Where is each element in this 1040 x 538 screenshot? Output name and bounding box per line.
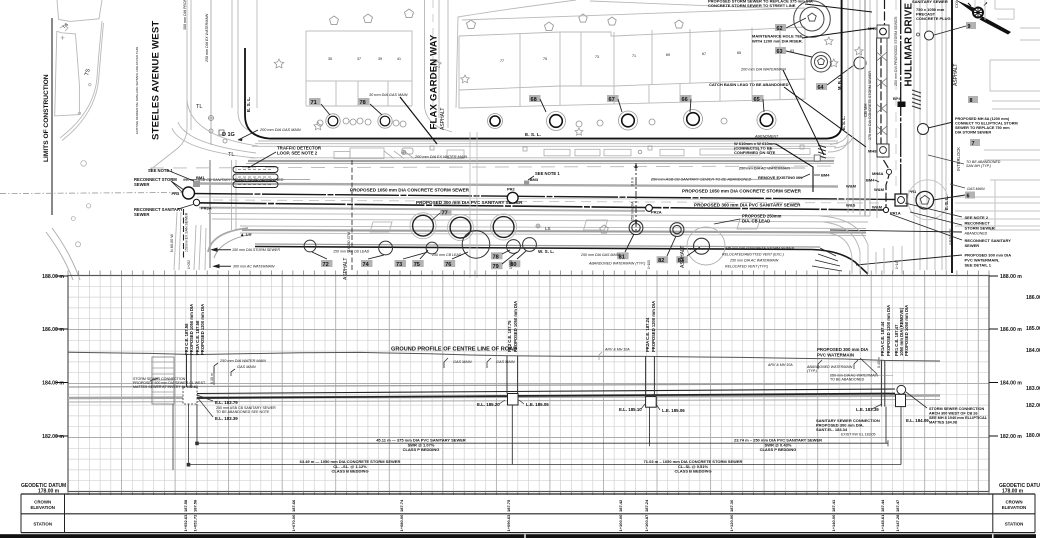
svg-text:STATION: STATION xyxy=(33,522,52,527)
svg-text:CROWN: CROWN xyxy=(34,500,51,505)
svg-text:67: 67 xyxy=(609,97,615,103)
svg-text:64: 64 xyxy=(818,85,824,91)
svg-text:180.00: 180.00 xyxy=(1026,433,1040,439)
svg-text:250 mm DIA WATER MAIN: 250 mm DIA WATER MAIN xyxy=(219,359,266,363)
svg-text:PROPOSED 300 mm DIA: PROPOSED 300 mm DIA xyxy=(817,347,869,352)
svg-text:66: 66 xyxy=(682,97,688,103)
svg-text:TO BE ABANDONED SEE NOTE: TO BE ABANDONED SEE NOTE xyxy=(216,410,270,414)
svg-text:TL: TL xyxy=(196,104,202,110)
svg-text:186.00 m: 186.00 m xyxy=(1000,327,1022,333)
svg-text:STATION: STATION xyxy=(1005,522,1024,527)
svg-text:75: 75 xyxy=(543,57,547,61)
svg-text:1+090: 1+090 xyxy=(509,260,513,269)
svg-text:PR1A C.E. 187.44: PR1A C.E. 187.44 xyxy=(880,321,885,356)
svg-text:PROPOSED 300 mm DIA PVC SANITA: PROPOSED 300 mm DIA PVC SANITARY SEWER xyxy=(416,200,523,205)
svg-text:0.30 m: 0.30 m xyxy=(210,373,214,384)
svg-text:67: 67 xyxy=(702,52,706,56)
svg-text:185.00: 185.00 xyxy=(1026,326,1040,332)
svg-text:1+070.00: 1+070.00 xyxy=(291,514,296,532)
svg-text:PR3A: PR3A xyxy=(201,206,212,211)
svg-text:STORM SEWER CONNECTION: STORM SEWER CONNECTION xyxy=(929,407,984,411)
svg-text:250 mm DIA: 250 mm DIA xyxy=(631,201,635,221)
svg-text:0.6 m: 0.6 m xyxy=(631,177,635,186)
svg-text:1+120.00: 1+120.00 xyxy=(729,514,734,532)
svg-text:71: 71 xyxy=(632,54,636,58)
svg-text:8: 8 xyxy=(970,98,973,104)
svg-text:HULLMAR DRIVE: HULLMAR DRIVE xyxy=(904,3,915,87)
svg-text:CLASS P BEDDING: CLASS P BEDDING xyxy=(760,447,797,452)
svg-text:73: 73 xyxy=(396,262,402,268)
svg-text:GROUND PROFILE OF CENTRE LINE: GROUND PROFILE OF CENTRE LINE OF ROAD xyxy=(391,347,517,353)
svg-text:1+052.72: 1+052.72 xyxy=(193,514,198,532)
svg-text:150 mm DIA STORM SEWER: 150 mm DIA STORM SEWER xyxy=(232,248,280,252)
svg-text:250 mm CB LEAD: 250 mm CB LEAD xyxy=(431,253,462,257)
svg-text:1+052: 1+052 xyxy=(187,260,191,269)
svg-text:E. S. L.: E. S. L. xyxy=(525,132,541,138)
svg-text:183.00: 183.00 xyxy=(1026,386,1040,392)
svg-text:ELEVATION: ELEVATION xyxy=(30,505,54,510)
svg-text:78: 78 xyxy=(493,254,499,260)
svg-text:CONC: CONC xyxy=(954,0,959,8)
svg-text:150mm EX SAN SEWER: 150mm EX SAN SEWER xyxy=(185,212,189,252)
svg-text:ASPHALT: ASPHALT xyxy=(343,258,349,280)
svg-text:65: 65 xyxy=(737,51,741,55)
svg-text:PR2A: PR2A xyxy=(651,210,662,215)
svg-text:9: 9 xyxy=(968,24,971,30)
svg-text:ASPHALT: ASPHALT xyxy=(440,108,446,130)
svg-text:187.24: 187.24 xyxy=(644,499,649,512)
svg-text:250 mm DIA AC WATERMAIN: 250 mm DIA AC WATERMAIN xyxy=(729,259,779,263)
svg-text:SEE NOTE 1: SEE NOTE 1 xyxy=(148,168,173,173)
svg-text:CLASS B BEDDING: CLASS B BEDDING xyxy=(331,468,368,473)
svg-text:184.00: 184.00 xyxy=(1026,348,1040,354)
svg-text:1+147.28: 1+147.28 xyxy=(895,514,900,532)
svg-text:79: 79 xyxy=(493,264,499,270)
svg-text:E.L. 185.10: E.L. 185.10 xyxy=(619,407,642,412)
svg-text:81: 81 xyxy=(619,254,625,260)
svg-text:PROPOSED 1050 mm DIA CONCRETE: PROPOSED 1050 mm DIA CONCRETE STORM SEWE… xyxy=(350,188,470,193)
svg-text:250 mm ASB CB SANITARY SEWER T: 250 mm ASB CB SANITARY SEWER TO BE ABAND… xyxy=(650,178,752,182)
svg-text:ASPHALT: ASPHALT xyxy=(953,64,959,86)
svg-text:CROWN: CROWN xyxy=(1005,500,1022,505)
svg-text:SEWER TO REPLACE 750 mm: SEWER TO REPLACE 750 mm xyxy=(955,126,1010,130)
svg-text:182.00 m: 182.00 m xyxy=(42,434,64,440)
svg-text:W&M: W&M xyxy=(874,187,885,192)
svg-text:6: 6 xyxy=(967,194,970,200)
svg-text:ABANDONED: ABANDONED xyxy=(964,232,988,236)
svg-text:150 mm DIA CB LEAD: 150 mm DIA CB LEAD xyxy=(333,250,370,254)
svg-text:ASPHALT: ASPHALT xyxy=(680,246,686,268)
svg-text:TO BE ABANDONED: TO BE ABANDONED xyxy=(830,378,865,382)
svg-text:82: 82 xyxy=(658,258,664,264)
svg-text:200 mm DIA WATERMAIN: 200 mm DIA WATERMAIN xyxy=(740,68,786,72)
svg-text:SEE NOTE 1: SEE NOTE 1 xyxy=(535,171,560,176)
svg-text:PROPOSED 300 mm DIA PVC SANITA: PROPOSED 300 mm DIA PVC SANITARY SEWER xyxy=(694,203,801,208)
svg-text:BM4: BM4 xyxy=(866,178,875,183)
svg-text:INTERLOCK: INTERLOCK xyxy=(956,147,961,171)
svg-text:PROPOSED 1050 mm DIA: PROPOSED 1050 mm DIA xyxy=(904,305,909,356)
svg-text:1+140.00: 1+140.00 xyxy=(831,514,836,532)
svg-text:PROPOSED 1200 mm DIA: PROPOSED 1200 mm DIA xyxy=(200,304,205,355)
svg-text:30 mm DIA GAS MAIN: 30 mm DIA GAS MAIN xyxy=(369,93,408,97)
svg-text:E. S. L.: E. S. L. xyxy=(944,196,949,210)
svg-text:ARV & MH 10A: ARV & MH 10A xyxy=(767,363,793,367)
svg-text:1+100.00: 1+100.00 xyxy=(618,514,623,532)
svg-text:182.00 m: 182.00 m xyxy=(1000,434,1022,440)
svg-text:SANT.EL. 183.34: SANT.EL. 183.34 xyxy=(816,427,848,432)
svg-text:37: 37 xyxy=(357,57,361,61)
svg-text:GAS MAIN: GAS MAIN xyxy=(237,365,256,369)
svg-text:PROPOSED 1200 mm DIA: PROPOSED 1200 mm DIA xyxy=(886,305,891,356)
svg-text:186.00 m: 186.00 m xyxy=(42,327,64,333)
svg-text:1+080.00: 1+080.00 xyxy=(399,514,404,532)
svg-text:76: 76 xyxy=(445,262,451,268)
svg-text:CONFIRMED ON SITE: CONFIRMED ON SITE xyxy=(734,150,776,155)
svg-text:69: 69 xyxy=(666,53,670,57)
svg-text:MH8A: MH8A xyxy=(872,171,883,176)
svg-text:E.L. 183.39: E.L. 183.39 xyxy=(215,416,238,421)
svg-text:L.E. 185.05: L.E. 185.05 xyxy=(526,402,549,407)
svg-text:77: 77 xyxy=(442,211,448,217)
svg-text:SEWER: SEWER xyxy=(134,212,149,217)
svg-text:300 mm DIA PROPOSED STORM SEWE: 300 mm DIA PROPOSED STORM SEWER xyxy=(183,0,187,30)
svg-text:63: 63 xyxy=(777,49,783,55)
svg-text:68: 68 xyxy=(531,97,537,103)
svg-text:ARCH 300 WEST OF CB 26: ARCH 300 WEST OF CB 26 xyxy=(929,412,978,416)
svg-text:77: 77 xyxy=(500,59,504,63)
svg-text:184.00 m: 184.00 m xyxy=(1000,381,1022,387)
svg-text:CONCRETE STORM SEWER TO STREET: CONCRETE STORM SEWER TO STREET LINE xyxy=(708,3,796,8)
svg-text:CLASS B BEDDING: CLASS B BEDDING xyxy=(674,468,711,473)
svg-text:74: 74 xyxy=(363,262,370,268)
svg-text:SEWER: SEWER xyxy=(965,243,980,248)
svg-text:SAN MH (TYP.): SAN MH (TYP.) xyxy=(966,164,991,168)
svg-text:W&S: W&S xyxy=(846,203,856,208)
svg-text:188.00 m: 188.00 m xyxy=(1000,274,1022,280)
svg-text:(TYP.): (TYP.) xyxy=(807,369,817,373)
svg-text:41: 41 xyxy=(397,57,401,61)
svg-text:CB MH: CB MH xyxy=(863,104,868,118)
svg-text:W&M: W&M xyxy=(846,184,857,189)
svg-text:SPRUCE: SPRUCE xyxy=(948,228,953,245)
svg-text:71: 71 xyxy=(311,100,317,106)
svg-text:PROPOSED 1050 mm DIA: PROPOSED 1050 mm DIA xyxy=(513,301,518,352)
svg-text:WITH 1200 mm DIA RISER.: WITH 1200 mm DIA RISER. xyxy=(752,39,803,44)
svg-text:BP4: BP4 xyxy=(893,96,902,101)
svg-text:FLAX GARDEN WAY: FLAX GARDEN WAY xyxy=(429,34,440,129)
svg-text:SANITARY SEWER: SANITARY SEWER xyxy=(912,0,948,4)
svg-text:MATTES SEWER AT INVERT EL 183.: MATTES SEWER AT INVERT EL 183.60 xyxy=(133,385,198,389)
svg-text:CONCRETE PLUG: CONCRETE PLUG xyxy=(916,16,951,21)
svg-text:PR2: PR2 xyxy=(507,187,516,192)
svg-text:300 mm AC WATERMAIN: 300 mm AC WATERMAIN xyxy=(233,265,275,269)
svg-text:AMENDMENT: AMENDMENT xyxy=(754,135,779,139)
svg-text:73: 73 xyxy=(595,55,599,59)
svg-text:EXIST INV EL 183.05: EXIST INV EL 183.05 xyxy=(841,433,876,437)
svg-text:187.58: 187.58 xyxy=(183,499,188,512)
svg-text:SEWER: SEWER xyxy=(134,182,149,187)
svg-text:E. S. L.: E. S. L. xyxy=(841,116,846,130)
svg-text:187.74: 187.74 xyxy=(399,499,404,512)
svg-text:LIMITS OF CONSTRUCTION: LIMITS OF CONSTRUCTION xyxy=(43,74,50,162)
svg-text:PROPOSED 1050 mm DIA: PROPOSED 1050 mm DIA xyxy=(189,304,194,355)
svg-text:39: 39 xyxy=(378,57,382,61)
svg-text:62: 62 xyxy=(777,26,783,32)
svg-text:1+145.61: 1+145.61 xyxy=(880,514,885,532)
svg-text:BM4: BM4 xyxy=(821,173,830,178)
svg-text:187.42: 187.42 xyxy=(618,499,623,512)
svg-text:35: 35 xyxy=(328,57,332,61)
svg-text:1+052.63: 1+052.63 xyxy=(183,514,188,532)
svg-text:200 mm DIA GAS MAIN: 200 mm DIA GAS MAIN xyxy=(259,128,301,132)
svg-text:CONNECT TO ELLIPTICAL STORM: CONNECT TO ELLIPTICAL STORM xyxy=(955,122,1018,126)
svg-text:200 mm DIA EX WATER MAIN: 200 mm DIA EX WATER MAIN xyxy=(414,155,467,159)
svg-text:187.75: 187.75 xyxy=(506,499,511,512)
svg-text:W&M: W&M xyxy=(872,205,883,210)
svg-text:187.66: 187.66 xyxy=(291,499,296,512)
svg-text:0.45 m: 0.45 m xyxy=(877,357,881,368)
svg-text:SEE NOTE 2: SEE NOTE 2 xyxy=(965,215,989,220)
svg-text:ARV & MH 10A: ARV & MH 10A xyxy=(604,348,630,352)
svg-text:REMOVE EXISTING MH: REMOVE EXISTING MH xyxy=(758,175,803,180)
svg-text:PR2A C.E. 187.24: PR2A C.E. 187.24 xyxy=(645,317,650,352)
svg-text:▲ LS: ▲ LS xyxy=(240,232,251,237)
svg-text:PVC WATERMAIN: PVC WATERMAIN xyxy=(817,353,854,358)
svg-text:1+147: 1+147 xyxy=(895,260,899,269)
svg-text:W. S. L.: W. S. L. xyxy=(538,249,554,254)
svg-text:188.00 m: 188.00 m xyxy=(42,274,64,280)
svg-text:75: 75 xyxy=(414,262,420,268)
svg-text:187.47: 187.47 xyxy=(895,499,900,512)
svg-text:M. B. L.: M. B. L. xyxy=(837,75,842,90)
svg-text:187.41: 187.41 xyxy=(831,499,836,512)
svg-text:PR3: PR3 xyxy=(172,191,181,196)
svg-text:GAS MAIN: GAS MAIN xyxy=(967,187,985,191)
svg-text:SEE DETAIL 1: SEE DETAIL 1 xyxy=(965,263,992,268)
svg-text:CATCH BASIN LEAD TO BE ABANDON: CATCH BASIN LEAD TO BE ABANDONED xyxy=(709,82,789,87)
svg-text:PROPOSED MH 8A (1200 mm): PROPOSED MH 8A (1200 mm) xyxy=(955,117,1010,121)
svg-text:PROPOSED 1200 mm DIA: PROPOSED 1200 mm DIA xyxy=(651,301,656,352)
svg-text:CLASS P BEDDING: CLASS P BEDDING xyxy=(403,447,440,452)
svg-text:STORM SEWER: STORM SEWER xyxy=(965,226,995,231)
svg-text:187.58: 187.58 xyxy=(193,499,198,512)
svg-text:187.44: 187.44 xyxy=(880,499,885,512)
svg-text:LOOP, SEE NOTE 2: LOOP, SEE NOTE 2 xyxy=(277,151,318,156)
svg-text:DIA. CB LEAD: DIA. CB LEAD xyxy=(742,219,770,224)
svg-text:182.00: 182.00 xyxy=(1026,403,1040,409)
svg-text:MH8: MH8 xyxy=(868,149,877,154)
svg-text:E.L. 184.09: E.L. 184.09 xyxy=(906,418,929,423)
svg-text:E.L. 185.20: E.L. 185.20 xyxy=(477,402,500,407)
svg-text:ABANDONED WATERMAIN (TYP.): ABANDONED WATERMAIN (TYP.) xyxy=(588,262,645,266)
svg-text:1+090.63: 1+090.63 xyxy=(506,514,511,532)
svg-text:1+100: 1+100 xyxy=(647,260,651,269)
svg-text:250 mm DIA EX WATERMAIN: 250 mm DIA EX WATERMAIN xyxy=(205,13,209,63)
svg-text:DIA STORM SEWER: DIA STORM SEWER xyxy=(955,131,991,135)
svg-text:375 mm DIA CONCRETE STORM SEWE: 375 mm DIA CONCRETE STORM SEWER xyxy=(868,71,872,140)
svg-text:375 mm DIA CONCRETE STORM SEWE: 375 mm DIA CONCRETE STORM SEWER xyxy=(725,247,794,251)
svg-text:LS: LS xyxy=(545,226,551,231)
svg-text:RELOCATED VENT (TYP.): RELOCATED VENT (TYP.) xyxy=(725,265,768,269)
svg-text:1+100.87: 1+100.87 xyxy=(644,514,649,532)
svg-text:7: 7 xyxy=(972,141,975,147)
svg-text:MATTES 184.08: MATTES 184.08 xyxy=(929,421,957,425)
svg-text:PR2 C.E. 187.75: PR2 C.E. 187.75 xyxy=(507,320,512,352)
svg-text:250 mm DIA GAS MAIN: 250 mm DIA GAS MAIN xyxy=(580,253,620,257)
svg-text:ELEVATION: ELEVATION xyxy=(1002,505,1026,510)
svg-text:65: 65 xyxy=(754,97,760,103)
svg-text:BM1: BM1 xyxy=(196,175,205,180)
svg-text:72: 72 xyxy=(323,262,329,268)
svg-text:78: 78 xyxy=(360,100,366,106)
svg-text:184.00 m: 184.00 m xyxy=(42,381,64,387)
svg-text:N 80.00 W: N 80.00 W xyxy=(170,234,174,252)
svg-text:E. S. L.: E. S. L. xyxy=(246,97,251,112)
svg-text:GAS MAIN: GAS MAIN xyxy=(453,360,472,364)
svg-text:250 mm DIA AC WATERMAIN: 250 mm DIA AC WATERMAIN xyxy=(738,167,790,171)
svg-text:L.E. 183.39: L.E. 183.39 xyxy=(856,407,879,412)
svg-text:E.L. 183.79: E.L. 183.79 xyxy=(215,400,238,405)
svg-text:EXISTING RESIDENTIAL DWELLING: EXISTING RESIDENTIAL DWELLING SETBACK LI… xyxy=(135,47,139,134)
svg-text:L.E. 185.06: L.E. 185.06 xyxy=(662,408,685,413)
svg-text:187.30: 187.30 xyxy=(729,499,734,512)
svg-text:STEELES AVENUE WEST: STEELES AVENUE WEST xyxy=(151,21,162,140)
svg-text:PROPOSED 1050 mm DIA CONCRETE: PROPOSED 1050 mm DIA CONCRETE STORM SEWE… xyxy=(682,189,802,194)
svg-text:186.00: 186.00 xyxy=(1026,295,1040,301)
svg-text:GAS MAIN: GAS MAIN xyxy=(496,360,515,364)
svg-text:RELOCATED/ABUTTED VENT (EXC.): RELOCATED/ABUTTED VENT (EXC.) xyxy=(722,253,784,257)
svg-text:SEE MH 8 1040 mm ELLIPTICAL: SEE MH 8 1040 mm ELLIPTICAL xyxy=(929,416,988,420)
